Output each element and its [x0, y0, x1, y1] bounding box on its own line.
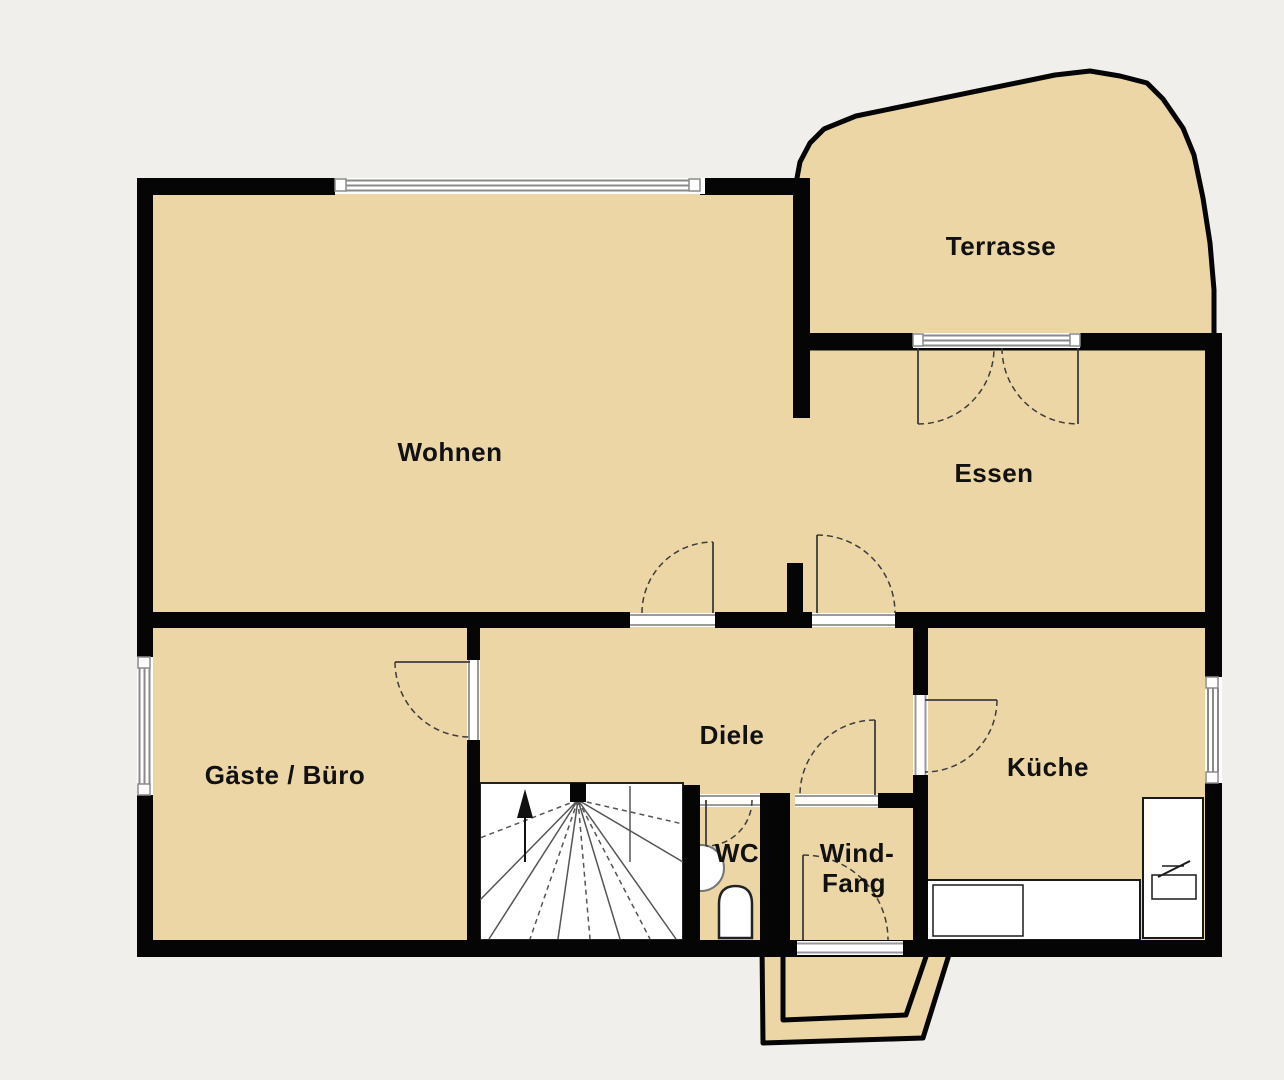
room-label-diele: Diele	[700, 720, 765, 750]
floor-plan: Wohnen Terrasse Essen Gäste / Büro Diele…	[0, 0, 1284, 1080]
staircase	[480, 783, 683, 940]
terrace-area	[797, 71, 1214, 348]
room-label-kueche: Küche	[1007, 752, 1089, 782]
room-label-wc: WC	[715, 838, 759, 868]
threshold-entrance-door	[797, 941, 903, 955]
stair-well	[480, 783, 683, 940]
room-label-windfang-line1: Wind-	[820, 838, 894, 868]
counter-right	[1143, 798, 1203, 938]
counter-appliance	[933, 885, 1023, 936]
toilet	[719, 886, 752, 938]
threshold-essen-door	[812, 613, 895, 627]
room-label-windfang-line2: Fang	[822, 868, 886, 898]
room-label-wohnen: Wohnen	[397, 437, 502, 467]
threshold-windfang-door	[795, 794, 878, 807]
sink-basin	[1152, 875, 1196, 899]
floor-plan-page: Wohnen Terrasse Essen Gäste / Büro Diele…	[0, 0, 1284, 1080]
room-label-gaeste-buero: Gäste / Büro	[205, 760, 366, 790]
threshold-gaeste-door	[467, 660, 480, 740]
window-wohnen-north	[335, 178, 705, 194]
room-label-terrasse: Terrasse	[946, 231, 1057, 261]
newel-post	[570, 783, 586, 802]
room-label-essen: Essen	[954, 458, 1033, 488]
threshold-wohnen-door	[630, 613, 715, 627]
entrance-porch	[762, 945, 952, 1043]
threshold-kueche-door	[913, 695, 928, 775]
window-gaeste-west	[137, 657, 153, 795]
window-kueche-east	[1205, 677, 1222, 783]
terrace-door-glazing	[913, 333, 1080, 348]
